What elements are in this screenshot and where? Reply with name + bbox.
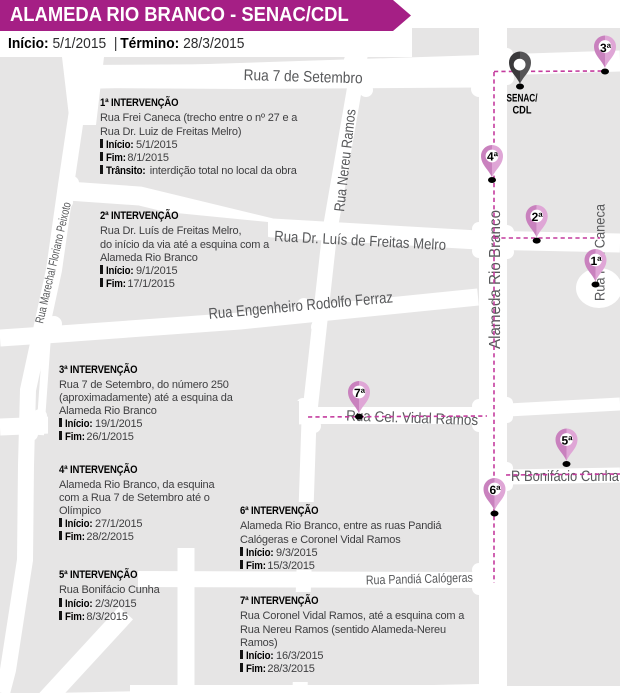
svg-text:3ª: 3ª: [600, 41, 612, 55]
svg-text:2ª: 2ª: [532, 210, 544, 224]
svg-text:SENAC/: SENAC/: [507, 93, 538, 105]
svg-text:4ª: 4ª: [487, 150, 499, 164]
svg-text:6ª: 6ª: [489, 483, 501, 497]
svg-text:7ª: 7ª: [354, 386, 366, 400]
svg-text:1ª: 1ª: [590, 254, 602, 268]
svg-text:R Bonifácio Cunha: R Bonifácio Cunha: [511, 468, 620, 485]
svg-text:5ª: 5ª: [561, 434, 573, 448]
svg-text:Rua 7 de Setembro: Rua 7 de Setembro: [243, 67, 362, 87]
svg-text:Alameda Rio Branco: Alameda Rio Branco: [487, 210, 504, 349]
svg-text:CDL: CDL: [513, 105, 532, 117]
